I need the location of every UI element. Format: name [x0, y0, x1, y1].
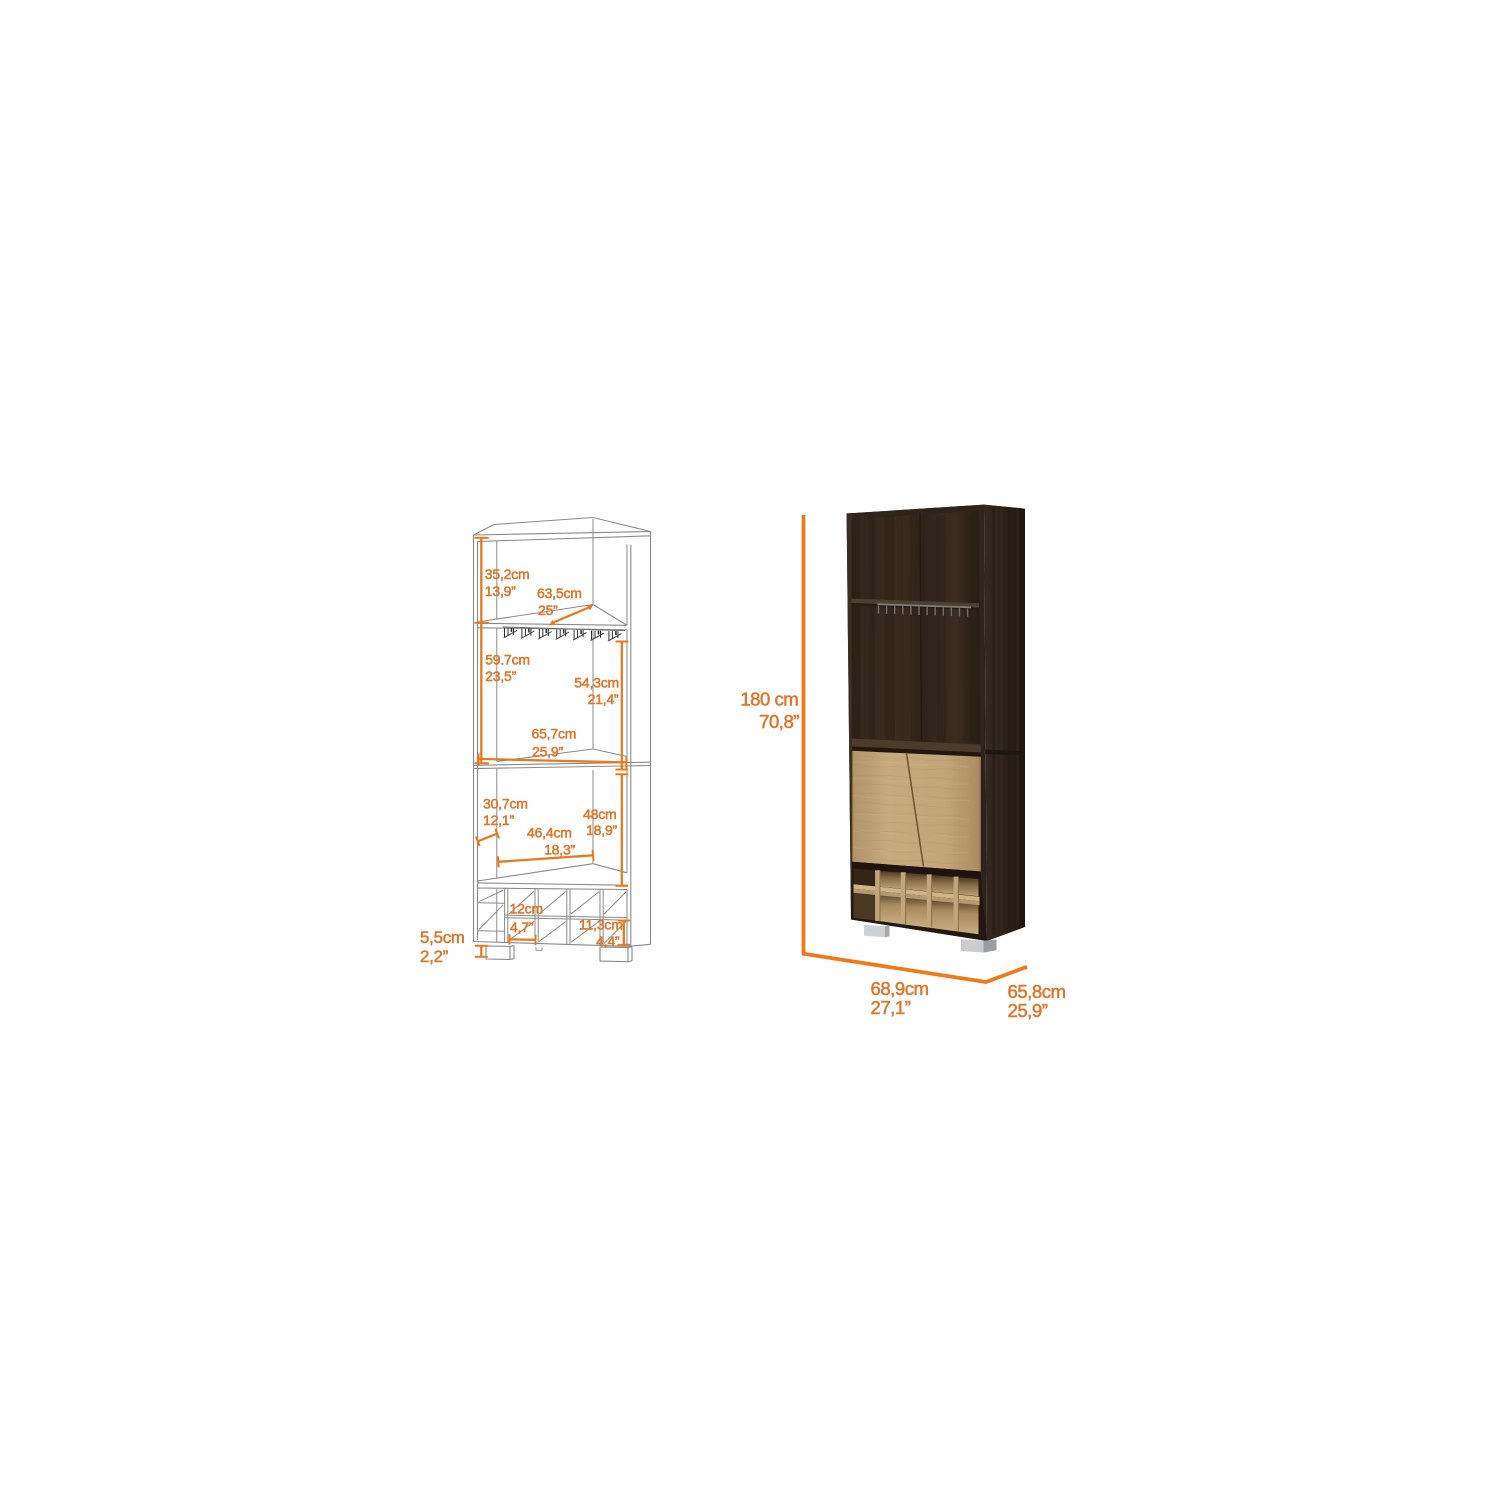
svg-text:21,4”: 21,4”: [588, 691, 619, 707]
svg-text:54,3cm: 54,3cm: [574, 674, 619, 690]
svg-text:25,9”: 25,9”: [1008, 1000, 1048, 1021]
svg-text:18,9”: 18,9”: [586, 822, 617, 838]
svg-text:18,3”: 18,3”: [544, 842, 575, 858]
svg-text:46,4cm: 46,4cm: [527, 824, 572, 840]
svg-text:25”: 25”: [538, 602, 558, 618]
svg-text:27,1”: 27,1”: [871, 997, 911, 1018]
svg-text:11,3cm: 11,3cm: [579, 916, 623, 932]
svg-text:180 cm: 180 cm: [740, 689, 798, 710]
svg-text:13,9”: 13,9”: [485, 583, 516, 599]
svg-text:65,8cm: 65,8cm: [1008, 981, 1066, 1002]
svg-text:59.7cm: 59.7cm: [485, 652, 530, 668]
svg-text:25,9”: 25,9”: [532, 744, 563, 760]
svg-text:68,9cm: 68,9cm: [871, 978, 929, 999]
svg-text:12,1”: 12,1”: [483, 812, 514, 828]
svg-text:4,4”: 4,4”: [596, 933, 620, 949]
svg-text:2,2”: 2,2”: [420, 947, 448, 966]
svg-text:4,7”: 4,7”: [510, 919, 534, 935]
svg-text:12cm: 12cm: [510, 900, 543, 916]
svg-text:5,5cm: 5,5cm: [420, 928, 465, 947]
svg-text:35,2cm: 35,2cm: [485, 566, 530, 582]
svg-text:30,7cm: 30,7cm: [483, 796, 528, 812]
svg-text:65,7cm: 65,7cm: [532, 726, 577, 742]
svg-text:23,5”: 23,5”: [485, 668, 516, 684]
svg-text:70,8”: 70,8”: [759, 711, 799, 732]
svg-text:63,5cm: 63,5cm: [537, 585, 582, 601]
svg-text:48cm: 48cm: [583, 806, 616, 822]
